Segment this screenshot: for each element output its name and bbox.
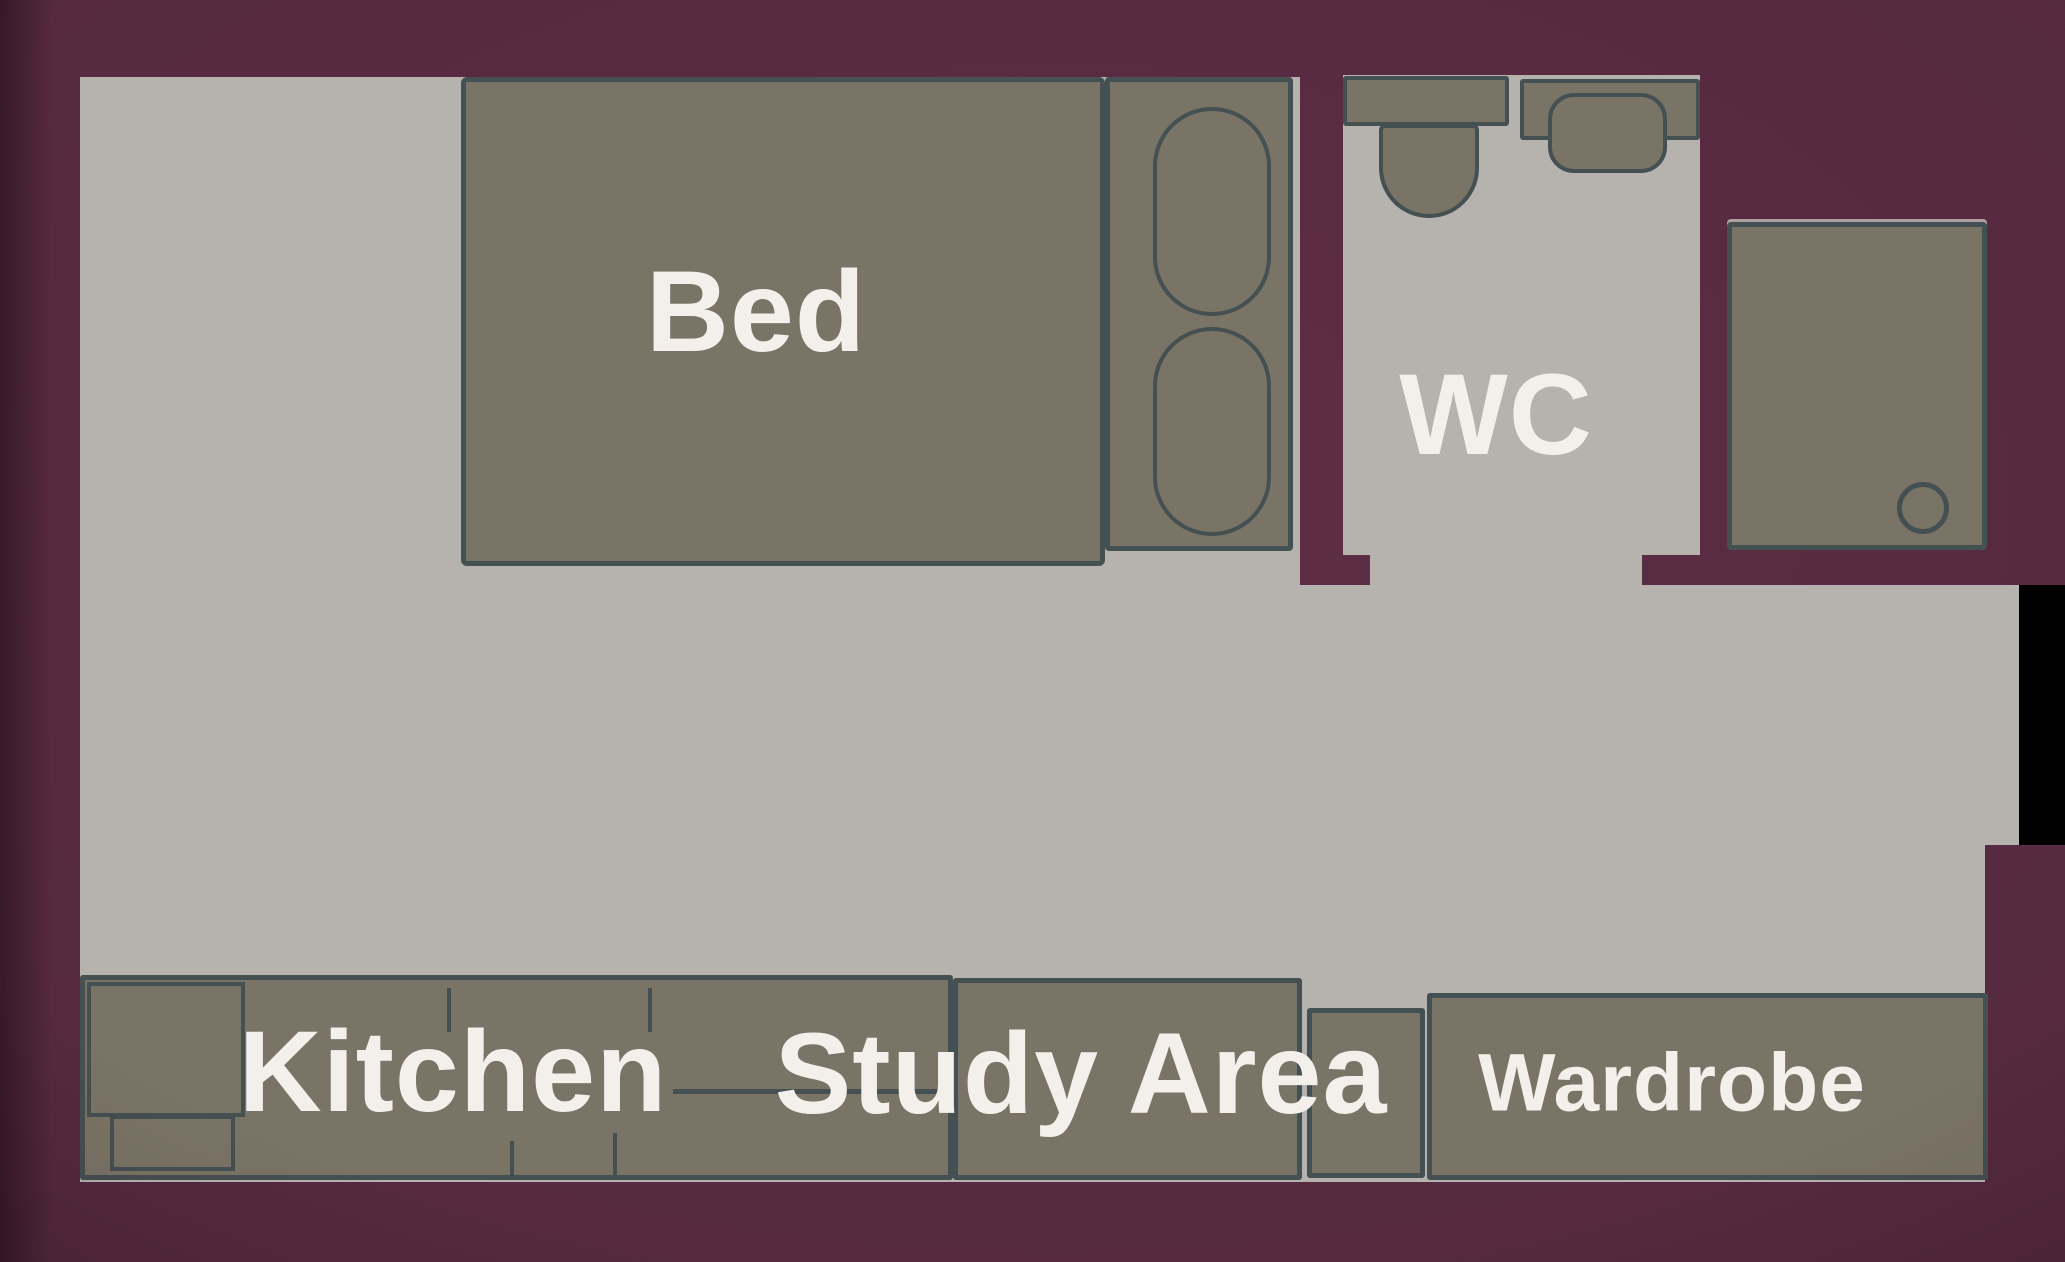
bed-headboard-shelf — [1105, 77, 1293, 551]
kitchen-label: Kitchen — [239, 1015, 668, 1130]
kitchen-sink-unit — [110, 1115, 235, 1171]
wc-label: WC — [1399, 358, 1593, 473]
floor-plan: Bed WC Kitchen Study Area Wardrobe — [0, 0, 2065, 1262]
pillow-icon — [1153, 327, 1271, 536]
counter-seam — [613, 1133, 617, 1180]
right-edge-void — [2019, 585, 2065, 845]
shower-drain-icon — [1897, 482, 1949, 534]
study-area-label: Study Area — [775, 1017, 1388, 1132]
counter-seam — [510, 1141, 514, 1180]
pillow-icon — [1153, 107, 1271, 316]
kitchen-appliance — [87, 982, 245, 1117]
wc-door-opening — [1370, 555, 1642, 585]
sink-icon — [1548, 93, 1667, 173]
wardrobe-label: Wardrobe — [1478, 1042, 1866, 1124]
right-floor-notch — [1985, 585, 2020, 845]
toilet-tank-icon — [1343, 76, 1509, 126]
shower-tray — [1727, 222, 1987, 550]
bed-label: Bed — [646, 255, 866, 370]
